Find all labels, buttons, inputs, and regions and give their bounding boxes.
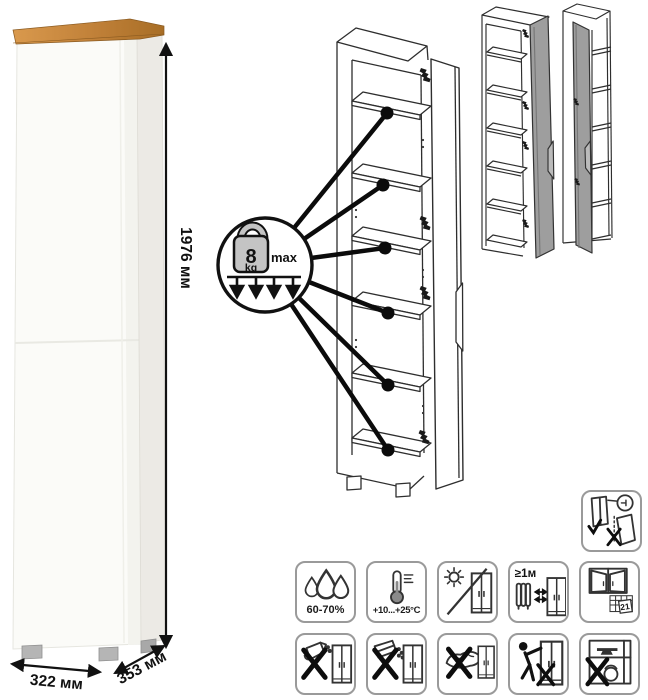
variant-right-door <box>563 4 612 253</box>
radiator-distance-icon: ≥1м <box>508 561 569 623</box>
no-wet-cloth-icon <box>437 633 498 695</box>
height-label: 1976 мм <box>177 227 194 289</box>
diagram-foot <box>347 476 361 490</box>
distance-label: ≥1м <box>514 567 535 580</box>
humidity-label: 60-70% <box>307 605 345 616</box>
door-handle-recess <box>456 283 463 351</box>
cabinet-side-panel <box>137 31 166 644</box>
calendar-day-label: 21 <box>619 601 630 612</box>
cabinet-photo <box>13 19 166 661</box>
height-dimension: 1976 мм <box>166 44 194 647</box>
no-pouring-liquids-icon <box>295 633 356 695</box>
no-heavy-objects-icon <box>579 633 640 695</box>
care-icon-grid: 60-70% +10...+25°C ≥1м <box>295 561 640 695</box>
weight-limit-badge: 8 kg max <box>218 218 312 312</box>
carcass-top <box>337 28 427 61</box>
wall-anchoring-required-icon <box>581 490 642 552</box>
exploded-cabinet-diagram <box>337 28 463 497</box>
width-dimension: 322 мм <box>12 664 100 693</box>
width-label: 322 мм <box>29 672 83 694</box>
variant-a-shelves <box>487 47 527 247</box>
shelves <box>352 92 431 457</box>
humidity-icon: 60-70% <box>295 561 356 623</box>
load-qualifier: max <box>271 250 298 265</box>
thermometer-icon: +10...+25°C <box>366 561 427 623</box>
product-sheet: 1976 мм 322 мм 353 мм <box>0 0 648 700</box>
depth-label: 353 мм <box>114 648 169 688</box>
no-scattering-powder-icon <box>366 633 427 695</box>
no-hanging-on-door-icon <box>508 633 569 695</box>
temperature-label: +10...+25°C <box>373 606 421 616</box>
diagram-foot <box>396 483 410 497</box>
gray-door-left <box>573 22 592 253</box>
load-unit: kg <box>245 262 257 274</box>
gray-door-right <box>530 16 554 258</box>
variant-left-door <box>482 7 554 258</box>
no-direct-sunlight-icon <box>437 561 498 623</box>
open-window-calendar-icon: 21 <box>579 561 640 623</box>
open-door <box>431 59 463 489</box>
